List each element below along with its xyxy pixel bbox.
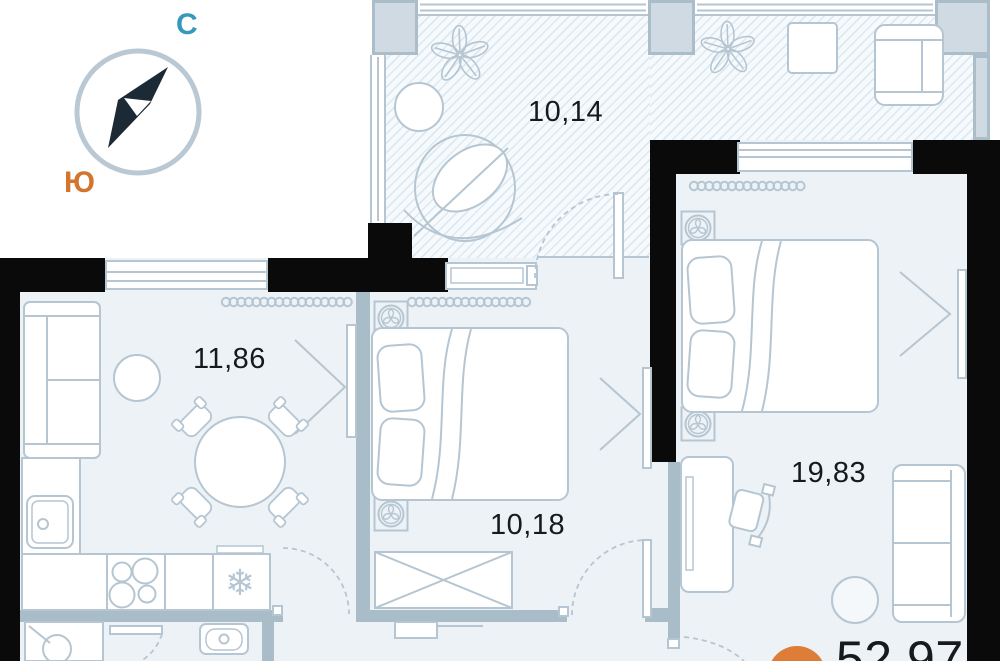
wall-right	[967, 140, 1000, 661]
bedroom-large-window	[737, 142, 913, 172]
compass-needle-notch	[124, 98, 151, 116]
compass-south-label: Ю	[64, 166, 95, 200]
wall-bedroom-small-bottom	[356, 610, 567, 622]
wall-left	[0, 292, 20, 661]
wall-door-jamb	[645, 608, 668, 622]
loggia-pillar-right	[935, 0, 990, 55]
loggia-floor-left	[386, 14, 650, 258]
wall-bedroom-large-left	[650, 140, 676, 462]
floor-bedroom-large	[650, 140, 1000, 661]
loggia-window-top-left	[418, 0, 648, 16]
wall-kitchen-bottom	[20, 610, 283, 622]
room-area-kitchen-living: 11,86	[193, 343, 266, 376]
loggia-frame-right	[973, 55, 990, 140]
floor-plan: ❄	[0, 0, 1000, 661]
room-area-loggia: 10,14	[528, 96, 603, 129]
loggia-floor-right	[650, 14, 973, 140]
wall-loggia-stub	[368, 223, 412, 260]
loggia-window-left	[370, 55, 386, 223]
floor-main	[0, 258, 680, 661]
kitchen-window	[105, 260, 268, 290]
room-area-bedroom-large: 19,83	[791, 457, 866, 490]
wall-bedroom-small-left	[356, 292, 370, 622]
compass-north-label: С	[176, 8, 198, 42]
wall-top-left	[0, 258, 105, 292]
compass	[77, 51, 199, 173]
bedroom-small-window	[445, 262, 537, 290]
wall-bedroom-large-top-left	[650, 140, 740, 174]
wall-bathroom-right	[262, 622, 274, 661]
room-area-bedroom-small: 10,18	[490, 509, 565, 542]
loggia-pillar-mid	[648, 0, 695, 55]
wall-bedroom-large-left-lower	[668, 462, 680, 645]
wall-top-mid	[268, 258, 448, 292]
loggia-pillar-left	[372, 0, 418, 55]
total-area-label: 52,97	[836, 630, 964, 661]
compass-needle-icon	[108, 67, 168, 148]
loggia-window-top-right	[695, 0, 935, 16]
